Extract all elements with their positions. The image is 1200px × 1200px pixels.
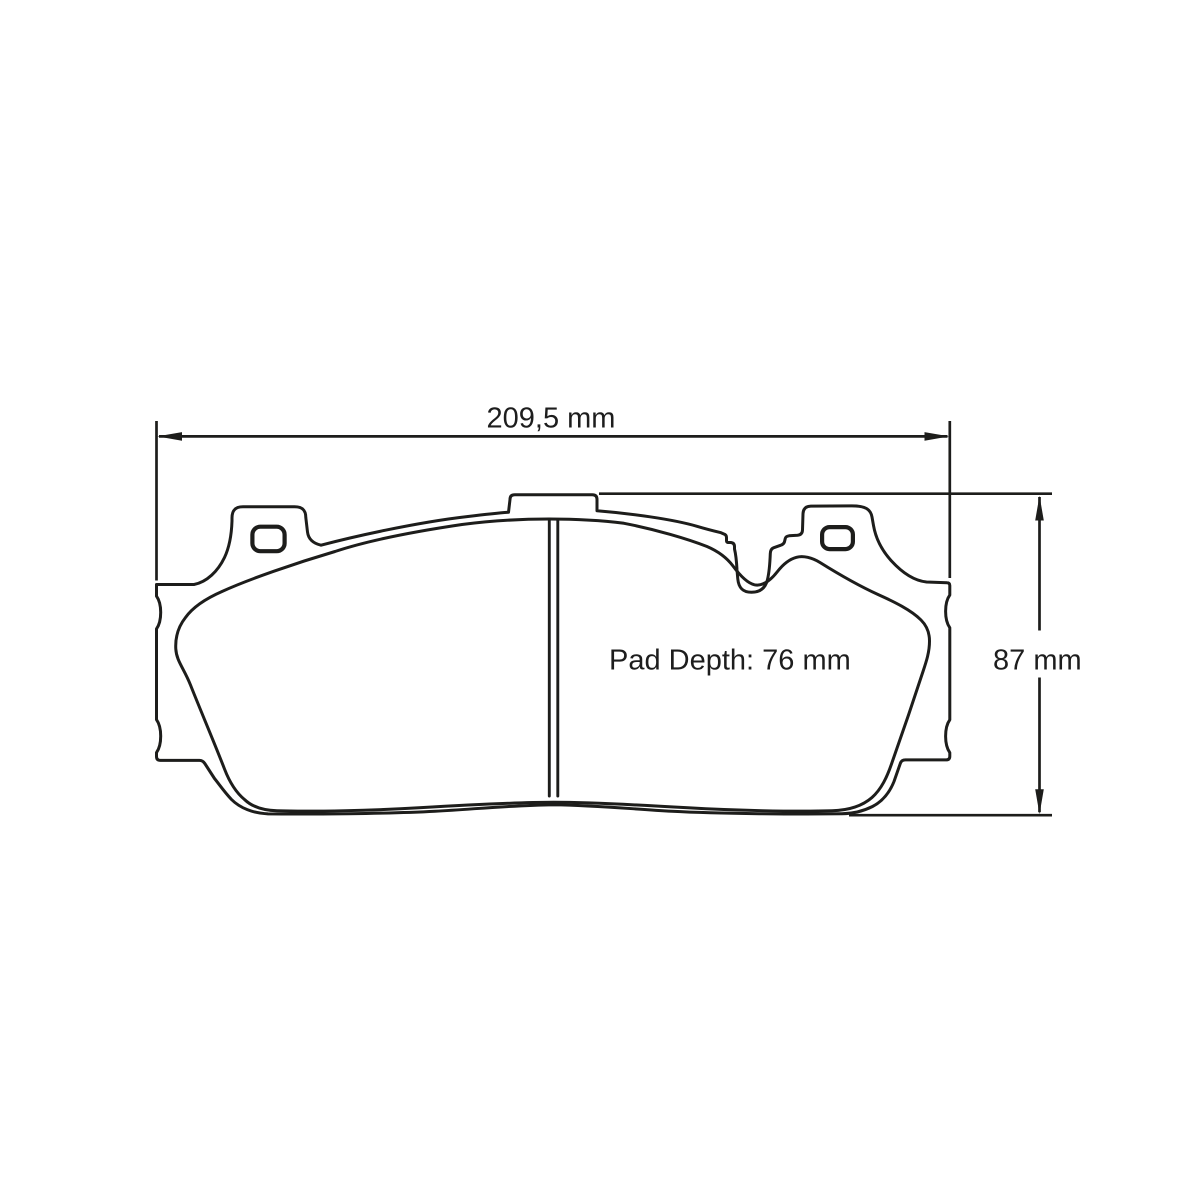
svg-text:209,5 mm: 209,5 mm xyxy=(487,403,616,435)
svg-text:87 mm: 87 mm xyxy=(993,645,1082,677)
svg-text:Pad Depth: 76 mm: Pad Depth: 76 mm xyxy=(609,645,851,677)
